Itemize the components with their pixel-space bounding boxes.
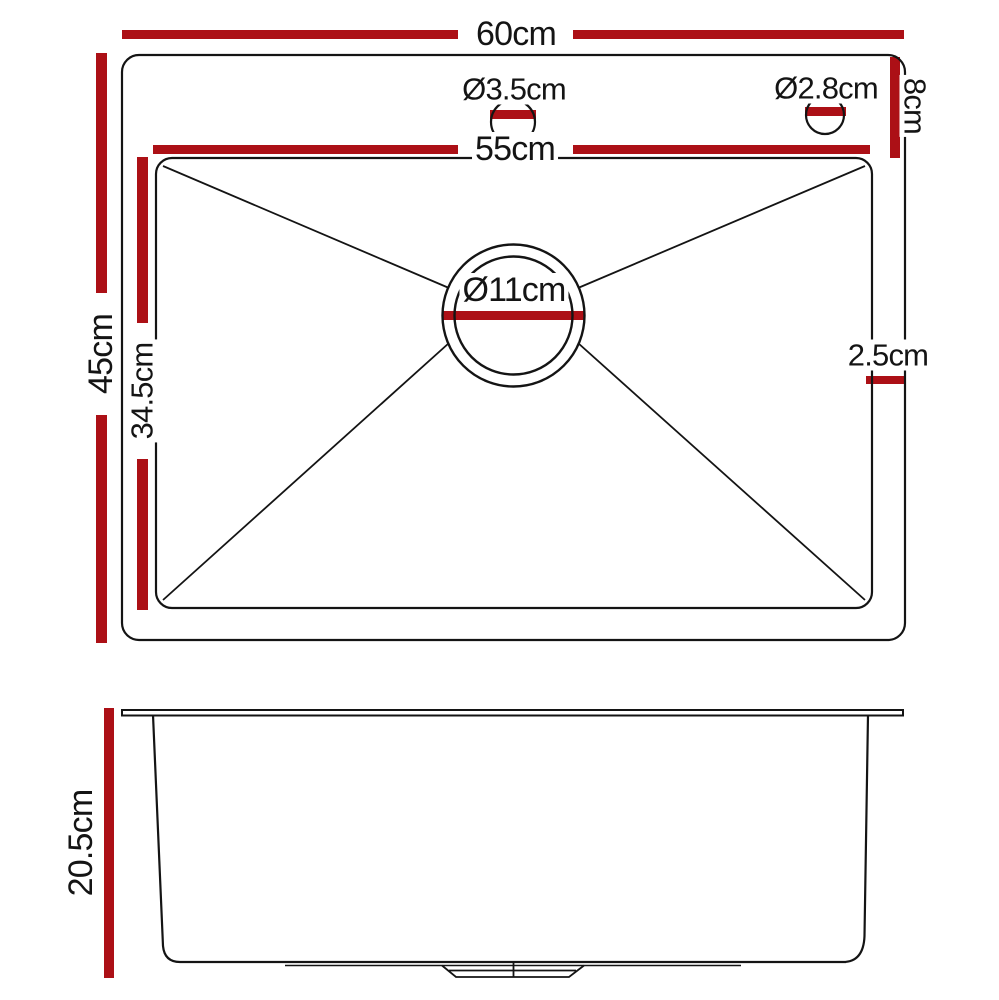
dim-label-drain-diameter: Ø11cm — [459, 273, 568, 307]
dimension-bars — [96, 30, 904, 978]
dim-label-bowl-height: 20.5cm — [64, 787, 98, 900]
dim-label-overall-depth: 45cm — [84, 311, 118, 397]
dim-label-bowl-depth: 34.5cm — [127, 340, 158, 443]
dim-bar-tap-hole-left — [490, 110, 536, 119]
dim-bar-55cm-left — [153, 145, 458, 154]
dim-bar-drain — [442, 311, 585, 320]
side-drain-fitting — [442, 962, 584, 977]
side-rim — [122, 710, 903, 716]
side-view — [122, 710, 903, 977]
dim-bar-45cm-top — [96, 53, 107, 293]
dim-label-side-lip: 2.5cm — [845, 340, 931, 371]
dim-bar-tap-hole-right — [805, 107, 846, 116]
dim-label-tap-hole-right: Ø2.8cm — [771, 73, 881, 104]
dim-bar-45cm-bottom — [96, 415, 107, 643]
dim-bar-55cm-right — [573, 145, 870, 154]
dim-bar-34-5cm-top — [137, 157, 148, 323]
sink-dimension-diagram: 60cm Ø3.5cm Ø2.8cm 8cm 55cm 45cm 34.5cm … — [0, 0, 999, 1000]
dim-label-bowl-width: 55cm — [472, 132, 558, 166]
dim-label-overall-width: 60cm — [473, 17, 559, 51]
dim-bar-20-5cm — [104, 708, 114, 978]
side-bowl-profile — [153, 715, 868, 962]
bowl-corner-diagonals — [163, 166, 865, 600]
sink-bowl-outline — [156, 158, 872, 608]
dim-label-tap-hole-left: Ø3.5cm — [459, 74, 569, 105]
dim-bar-34-5cm-bottom — [137, 459, 148, 610]
dim-bar-60cm-left — [122, 30, 458, 39]
dim-bar-60cm-right — [573, 30, 904, 39]
dim-label-tap-deck-depth: 8cm — [900, 75, 931, 137]
